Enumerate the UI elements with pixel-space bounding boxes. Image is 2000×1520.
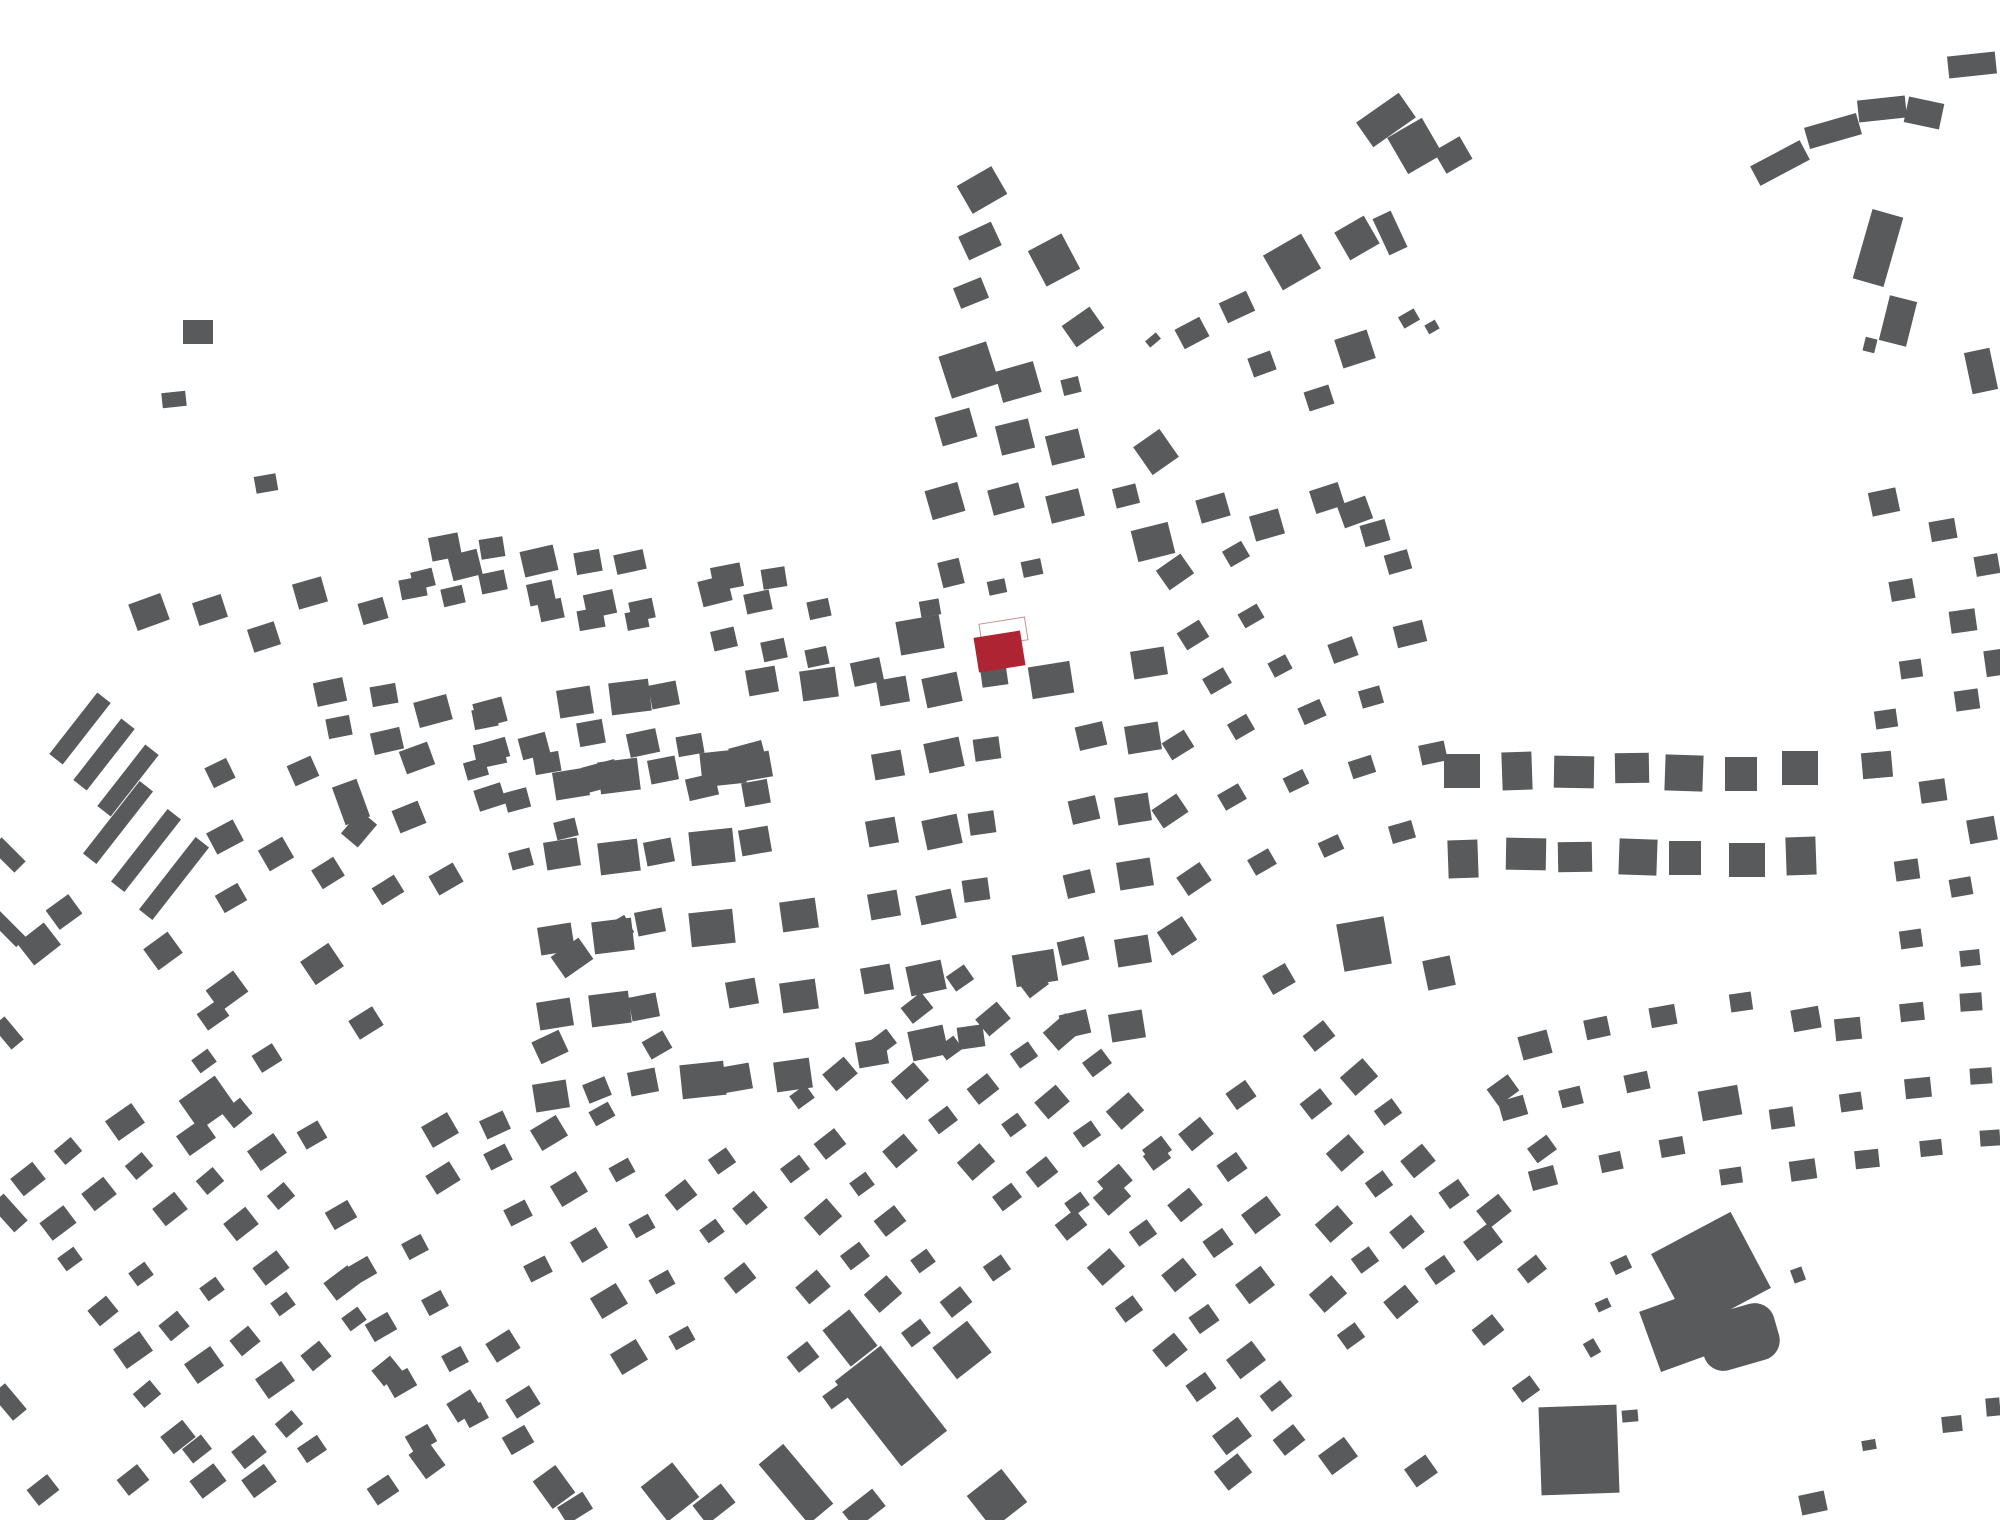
building-footprint: [1327, 636, 1358, 664]
building-footprint: [267, 1182, 295, 1210]
building-footprint: [440, 585, 465, 607]
building-footprint: [184, 1346, 224, 1384]
building-footprint: [1623, 1071, 1650, 1094]
building-footprint: [1664, 754, 1703, 791]
building-footprint: [215, 883, 248, 913]
building-footprint: [1472, 1314, 1505, 1346]
building-footprint: [688, 828, 735, 866]
building-footprint: [325, 715, 352, 739]
building-footprint: [1351, 1246, 1379, 1273]
building-footprint: [1060, 376, 1081, 396]
building-footprint: [953, 277, 989, 309]
building-footprint: [313, 677, 347, 707]
building-footprint: [1928, 518, 1957, 542]
building-footprint: [1383, 1285, 1419, 1320]
building-footprint: [725, 978, 759, 1009]
building-footprint: [761, 566, 788, 590]
building-footprint: [204, 758, 235, 788]
building-footprint: [125, 1152, 153, 1180]
building-footprint: [649, 1270, 676, 1295]
building-footprint: [473, 782, 506, 812]
building-footprint: [1438, 1179, 1469, 1209]
building-footprint: [992, 1183, 1022, 1212]
building-footprint: [1115, 1295, 1143, 1322]
building-footprint: [297, 1120, 328, 1149]
building-footprint: [589, 1102, 616, 1127]
building-footprint: [1949, 876, 1974, 898]
building-footprint: [1463, 1223, 1503, 1261]
building-footprint: [1919, 778, 1948, 803]
building-footprint: [987, 578, 1008, 595]
building-footprint: [882, 1134, 918, 1169]
building-footprint: [597, 839, 641, 876]
figure-ground-map: [0, 0, 2000, 1520]
building-footprint: [1512, 1375, 1540, 1402]
building-footprint: [905, 960, 946, 997]
building-footprint: [183, 320, 213, 344]
building-footprint: [1538, 1405, 1619, 1496]
building-footprint: [1161, 1258, 1197, 1293]
building-footprint: [1157, 916, 1197, 956]
building-footprint: [369, 683, 398, 707]
building-footprint: [624, 609, 649, 631]
building-footprint: [1045, 428, 1085, 465]
building-footprint: [1326, 1134, 1364, 1172]
building-footprint: [117, 1464, 150, 1496]
building-footprint: [537, 923, 575, 956]
building-footprint: [799, 667, 839, 702]
building-footprint: [745, 666, 779, 697]
building-footprint: [1444, 754, 1480, 788]
highlighted-building: [974, 631, 1026, 673]
building-footprint: [1861, 751, 1893, 780]
building-footprint: [940, 1286, 973, 1318]
building-footprint: [421, 1290, 449, 1316]
building-footprint: [1262, 963, 1296, 995]
building-footprint: [1583, 1338, 1601, 1358]
building-footprint: [223, 1207, 259, 1242]
building-footprint: [189, 1463, 226, 1499]
building-footprint: [401, 1234, 429, 1260]
building-footprint: [1114, 935, 1152, 968]
building-footprint: [479, 1110, 511, 1139]
building-footprint: [1834, 1017, 1862, 1042]
building-footprint: [27, 1474, 60, 1506]
building-footprint: [1034, 1085, 1070, 1120]
building-footprint: [81, 1177, 117, 1212]
building-footprint: [1063, 869, 1096, 899]
building-footprint: [1729, 992, 1753, 1013]
building-footprint: [1130, 647, 1168, 680]
building-footprint: [648, 681, 680, 710]
building-footprint: [1176, 862, 1212, 896]
building-footprint: [1309, 1275, 1347, 1313]
building-footprint: [1195, 492, 1230, 523]
building-footprint: [428, 862, 463, 895]
building-footprint: [1501, 751, 1532, 790]
building-footprint: [1340, 1058, 1378, 1096]
building-footprint: [143, 932, 183, 971]
building-footprint: [357, 597, 388, 625]
building-footprint: [532, 1080, 570, 1113]
building-footprint: [311, 857, 345, 889]
building-footprint: [1087, 1248, 1125, 1286]
building-footprint: [1116, 858, 1154, 891]
building-footprint: [365, 1312, 398, 1342]
building-footprint: [973, 736, 1002, 761]
building-footprint: [348, 1006, 383, 1039]
building-footprint: [0, 1383, 27, 1421]
building-footprint: [741, 779, 771, 807]
building-footprint: [1384, 549, 1413, 575]
building-footprint: [938, 341, 999, 398]
building-footprint: [1785, 836, 1816, 875]
building-footprint: [1393, 620, 1427, 649]
building-footprint: [780, 1155, 810, 1184]
building-footprint: [710, 562, 744, 591]
building-footprint: [842, 1489, 885, 1520]
building-footprint: [413, 694, 453, 728]
building-footprint: [669, 1326, 696, 1351]
building-footprint: [849, 1172, 875, 1197]
building-footprint: [1398, 308, 1420, 328]
building-footprint: [1217, 783, 1247, 811]
building-footprint: [1188, 1304, 1219, 1334]
building-footprint: [871, 750, 905, 781]
building-footprint: [1303, 1020, 1336, 1052]
building-footprint: [1615, 753, 1650, 784]
building-footprint: [921, 814, 962, 851]
building-footprint: [39, 1205, 76, 1241]
building-footprint: [1300, 1088, 1333, 1120]
building-footprint: [1527, 1135, 1557, 1164]
building-footprint: [1857, 96, 1907, 123]
building-footprint: [1954, 688, 1981, 711]
building-footprint: [87, 1296, 118, 1327]
building-footprint: [1219, 291, 1255, 324]
building-footprint: [958, 222, 1002, 261]
building-footprint: [957, 1143, 995, 1181]
building-footprint: [983, 1254, 1011, 1281]
building-footprint: [1202, 1228, 1233, 1258]
building-footprint: [910, 1249, 936, 1274]
building-footprint: [935, 408, 978, 447]
building-footprint: [503, 1200, 533, 1227]
building-footprint: [1983, 649, 2000, 677]
building-footprint: [779, 979, 819, 1014]
building-footprint: [543, 838, 581, 871]
building-footprint: [1868, 487, 1900, 516]
building-footprint: [1021, 558, 1044, 578]
building-footprint: [1899, 659, 1923, 680]
building-footprint: [1177, 620, 1210, 651]
building-footprint: [1167, 1188, 1203, 1223]
building-footprint: [1648, 1004, 1677, 1028]
building-footprint: [1001, 1113, 1027, 1138]
building-footprint: [196, 1167, 224, 1195]
building-footprint: [113, 1331, 153, 1369]
building-footprint: [1162, 730, 1195, 761]
building-footprint: [1337, 1322, 1365, 1349]
building-footprint: [1214, 1453, 1252, 1490]
building-footprint: [804, 646, 829, 668]
building-footprint: [292, 576, 328, 609]
building-footprint: [287, 756, 320, 787]
building-footprint: [710, 627, 738, 652]
building-footprint: [626, 728, 660, 758]
building-footprint: [1374, 1098, 1402, 1125]
building-footprint: [901, 1319, 931, 1348]
building-footprint: [1941, 1415, 1963, 1433]
building-footprint: [1698, 1085, 1743, 1121]
building-footprint: [1874, 709, 1898, 730]
building-footprint: [1283, 769, 1310, 793]
building-footprint: [1114, 793, 1152, 826]
building-footprint: [1434, 136, 1473, 174]
building-footprint: [708, 1147, 736, 1174]
building-footprint: [719, 1063, 753, 1094]
building-footprint: [968, 810, 997, 835]
building-footprint: [1959, 949, 1981, 967]
building-footprint: [1156, 554, 1194, 591]
building-footprint: [133, 1380, 161, 1408]
building-footprint: [17, 923, 61, 966]
building-footprint: [105, 1103, 145, 1141]
building-footprint: [300, 943, 344, 985]
building-footprint: [176, 1118, 216, 1156]
building-footprint: [822, 1057, 858, 1092]
building-footprint: [1247, 848, 1277, 876]
building-footprint: [995, 418, 1035, 455]
building-footprint: [840, 1242, 870, 1271]
building-footprint: [1263, 234, 1321, 291]
building-footprint: [247, 621, 281, 652]
building-footprint: [471, 706, 498, 730]
building-footprint: [531, 1030, 568, 1064]
building-footprint: [1769, 1106, 1796, 1129]
building-footprint: [1055, 1209, 1088, 1241]
building-footprint: [629, 1214, 656, 1239]
building-footprint: [1959, 992, 1982, 1011]
building-footprint: [1045, 488, 1085, 523]
building-footprint: [229, 1326, 260, 1357]
building-footprint: [597, 758, 641, 795]
building-footprint: [556, 686, 594, 719]
building-footprint: [1260, 1380, 1293, 1412]
building-footprint: [1178, 1117, 1214, 1152]
building-footprint: [573, 549, 602, 575]
building-footprint: [865, 817, 899, 848]
building-footprint: [502, 1425, 535, 1455]
building-footprint: [1028, 661, 1074, 699]
building-footprint: [1853, 209, 1904, 287]
building-footprint: [1973, 553, 2000, 577]
building-footprint: [647, 756, 679, 785]
building-footprint: [503, 787, 531, 813]
building-footprint: [932, 1321, 991, 1380]
building-footprint: [1888, 578, 1915, 602]
building-footprint: [692, 1483, 735, 1520]
building-footprint: [1336, 916, 1392, 972]
building-footprint: [1131, 522, 1176, 562]
building-footprint: [1979, 1129, 2000, 1146]
building-footprint: [937, 558, 965, 589]
building-footprint: [1729, 843, 1765, 877]
building-footprint: [1839, 1092, 1863, 1113]
building-footprint: [590, 1283, 628, 1319]
building-footprint: [576, 719, 606, 747]
building-footprint: [1659, 1136, 1686, 1158]
building-footprint: [895, 614, 944, 655]
building-footprint: [1517, 1030, 1552, 1061]
building-footprint: [258, 837, 294, 872]
building-footprint: [1610, 1255, 1632, 1275]
building-footprint: [479, 536, 506, 560]
building-footprint: [1782, 751, 1818, 785]
building-footprint: [399, 742, 435, 775]
building-footprint: [241, 1464, 277, 1498]
building-footprint: [804, 1198, 842, 1236]
building-footprint: [1129, 1219, 1157, 1246]
building-footprint: [1318, 1437, 1358, 1475]
building-footprint: [724, 1262, 757, 1294]
building-footprint: [1372, 211, 1407, 256]
building-footprint: [760, 638, 788, 663]
building-footprint: [1108, 1010, 1146, 1043]
building-footprint: [552, 768, 590, 801]
building-footprint: [1558, 842, 1593, 873]
building-footprint: [128, 593, 170, 631]
building-footprint: [270, 1292, 296, 1317]
building-footprint: [643, 838, 675, 867]
building-footprint: [1365, 1170, 1393, 1197]
building-footprint: [699, 1219, 725, 1244]
building-footprint: [1318, 834, 1345, 858]
building-footprint: [247, 1133, 287, 1171]
building-footprint: [1879, 295, 1917, 346]
building-footprint: [994, 361, 1041, 403]
building-footprint: [254, 473, 279, 494]
building-footprint: [946, 964, 974, 991]
building-footprint: [297, 1435, 327, 1463]
building-footprint: [508, 847, 534, 870]
building-footprint: [1315, 1205, 1353, 1243]
building-footprint: [1899, 1002, 1925, 1022]
building-footprint: [1964, 348, 1998, 394]
building-footprint: [1517, 1255, 1547, 1284]
building-footprint: [588, 991, 632, 1028]
building-footprint: [1145, 332, 1161, 347]
building-footprint: [252, 1043, 283, 1073]
building-footprint: [582, 1076, 612, 1104]
building-footprint: [1598, 1151, 1623, 1173]
building-footprint: [610, 1339, 648, 1375]
building-footprint: [1985, 1397, 2000, 1416]
building-footprint: [1358, 685, 1384, 708]
building-footprint: [957, 166, 1008, 214]
building-footprint: [1075, 721, 1108, 751]
building-footprint: [1919, 1139, 1943, 1157]
building-footprint: [325, 1200, 358, 1230]
building-footprint: [158, 1311, 189, 1342]
building-footprint: [962, 877, 991, 902]
building-footprint: [1212, 1417, 1252, 1455]
building-footprint: [1558, 1086, 1584, 1109]
building-footprint: [1106, 1092, 1144, 1130]
building-footprint: [1476, 1194, 1512, 1229]
building-footprint: [1854, 1149, 1880, 1169]
building-footprint: [550, 1171, 588, 1207]
building-footprint: [206, 819, 244, 854]
building-footprint: [152, 1192, 188, 1227]
building-footprint: [738, 826, 772, 857]
building-footprint: [915, 889, 956, 926]
building-footprint: [1241, 1196, 1281, 1234]
building-footprint: [1297, 699, 1326, 725]
building-footprint: [199, 1277, 225, 1302]
building-footprint: [876, 676, 910, 707]
building-footprint: [806, 598, 831, 620]
building-footprint: [867, 890, 901, 921]
building-footprint: [759, 1444, 834, 1520]
building-footprint: [1861, 1439, 1877, 1451]
building-footprint: [1899, 929, 1923, 950]
building-footprint: [1506, 838, 1547, 871]
building-footprint: [191, 1049, 217, 1074]
building-footprint: [1947, 52, 1997, 79]
building-footprint: [919, 598, 941, 617]
building-footprint: [1010, 1041, 1038, 1068]
building-footprint: [1174, 317, 1209, 350]
building-footprint: [275, 1410, 303, 1438]
building-footprint: [1969, 1067, 1992, 1084]
building-footprint: [1669, 841, 1701, 875]
building-footprint: [1725, 757, 1757, 791]
building-footprint: [1062, 307, 1105, 348]
building-footprint: [743, 590, 773, 615]
building-footprint: [688, 909, 735, 947]
building-footprint: [0, 1016, 24, 1049]
building-footprint: [1949, 608, 1978, 633]
building-footprint: [1057, 936, 1090, 966]
building-footprint: [341, 1307, 367, 1332]
building-footprint: [1618, 838, 1657, 875]
building-footprint: [1750, 140, 1810, 186]
building-footprint: [570, 1227, 608, 1263]
building-footprint: [1216, 1152, 1247, 1182]
building-footprint: [642, 1030, 673, 1059]
building-footprint: [641, 1462, 700, 1520]
building-footprint: [398, 576, 427, 601]
building-footprint: [1227, 714, 1255, 741]
building-footprint: [967, 1073, 1000, 1105]
building-footprint: [372, 875, 405, 906]
building-footprint: [1404, 1455, 1438, 1488]
building-footprint: [1028, 233, 1080, 286]
building-footprint: [1124, 722, 1162, 755]
building-footprint: [1554, 756, 1595, 789]
building-footprint: [1222, 541, 1250, 568]
building-footprint: [1225, 1080, 1256, 1110]
building-footprint: [1026, 1156, 1059, 1188]
building-footprint: [1235, 1266, 1275, 1304]
building-footprint: [1904, 1077, 1932, 1100]
building-footprint: [1073, 1120, 1101, 1147]
building-footprint: [1267, 654, 1292, 678]
building-footprint: [1348, 755, 1376, 780]
building-footprint: [1237, 604, 1264, 629]
building-footprint: [1422, 955, 1456, 990]
